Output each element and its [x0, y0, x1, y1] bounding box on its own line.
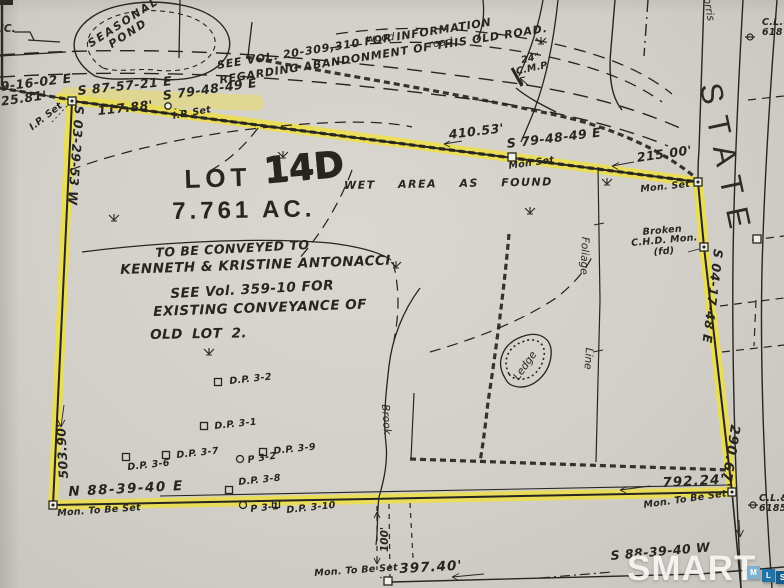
highlighter-boundary	[53, 95, 732, 505]
foliage-label: Foliage	[577, 237, 590, 275]
foliage-line-label: Line	[581, 347, 594, 370]
utility-pole-symbols	[745, 34, 758, 508]
smart-watermark-logo: SMART	[627, 549, 756, 588]
lot-acreage: 7.761 AC.	[172, 197, 316, 226]
survey-plat-map: IC. 9-16-02 E 125.81' I.P. Set S 87-57-2…	[0, 0, 784, 588]
utility-pole-label-bottom: C.L.& 6185	[759, 494, 784, 515]
mls-m-badge: M	[747, 566, 760, 579]
brook-label: Brook	[378, 404, 392, 435]
pole-bottom-line2: 6185	[759, 504, 784, 514]
wood-label: wood	[366, 32, 395, 45]
distance-397-40: 397.40'	[399, 559, 463, 577]
lot-number: 14D	[262, 145, 345, 191]
conveyed-note-5: OLD LOT 2.	[150, 326, 247, 343]
scan-edge-marks	[0, 0, 13, 86]
mls-l-badge: L	[762, 569, 775, 582]
utility-pole-label-top: C.L.& 618	[762, 18, 784, 39]
foliage-line	[593, 167, 604, 462]
broken-monument-label: Broken C.H.D. Mon. (fd)	[630, 223, 696, 260]
adjoiner-inc-label: IC.	[0, 24, 16, 36]
strip-width-label: 100'	[380, 527, 392, 552]
lot-word: LOT	[184, 163, 252, 194]
mls-s-badge: S	[776, 571, 784, 584]
distance-503-90: 503.90'	[54, 423, 71, 479]
pole-top-line2: 618	[762, 28, 784, 38]
distance-792-24: 792.24'	[662, 473, 726, 491]
